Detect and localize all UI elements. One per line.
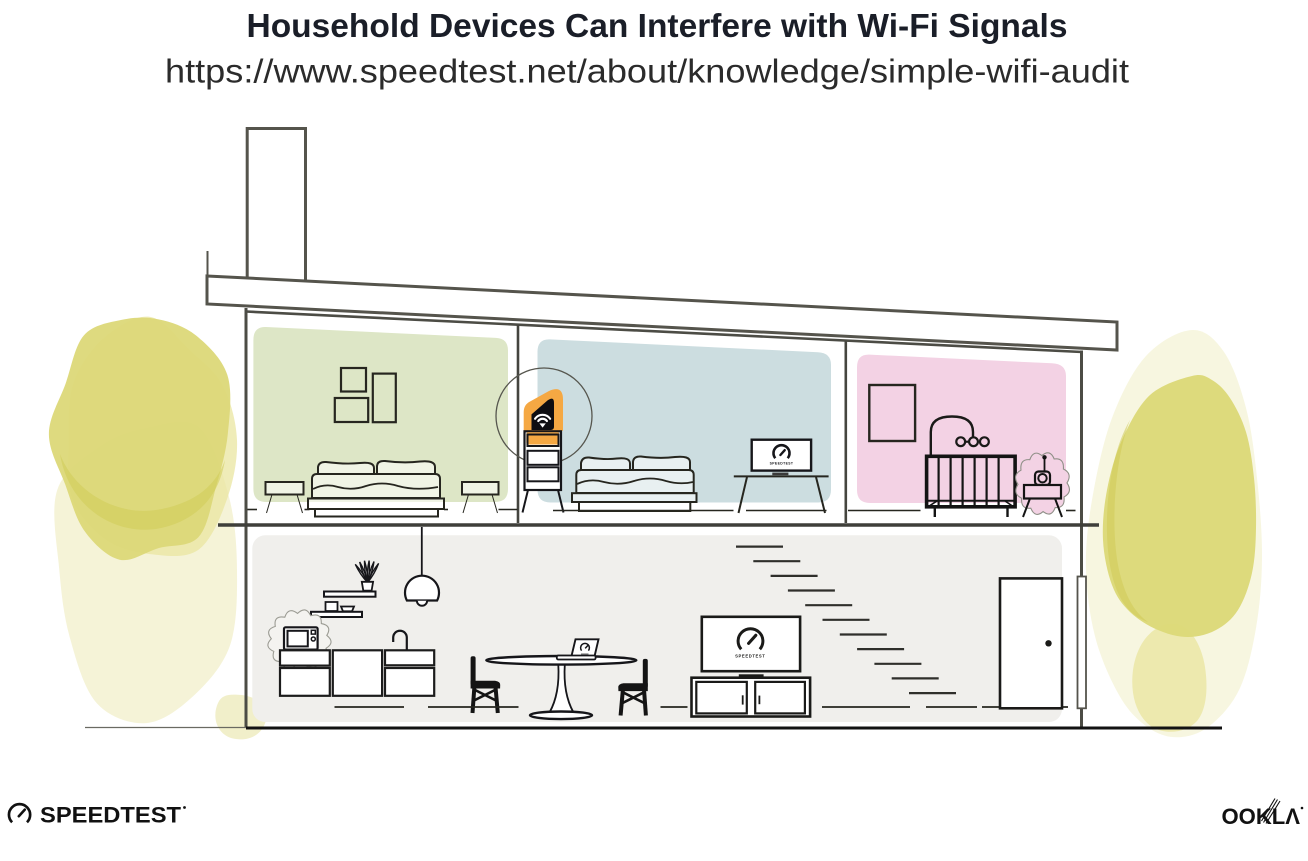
svg-text:SPEEDTEST: SPEEDTEST: [735, 653, 765, 658]
svg-text:SPEEDTEST: SPEEDTEST: [770, 462, 794, 466]
svg-text:https://www.speedtest.net/abou: https://www.speedtest.net/about/knowledg…: [165, 53, 1129, 90]
svg-text:Household Devices Can Interfer: Household Devices Can Interfere with Wi-…: [247, 7, 1068, 44]
svg-text:OOKLΛ: OOKLΛ: [1222, 804, 1301, 829]
svg-text:SPEEDTEST: SPEEDTEST: [40, 803, 181, 828]
